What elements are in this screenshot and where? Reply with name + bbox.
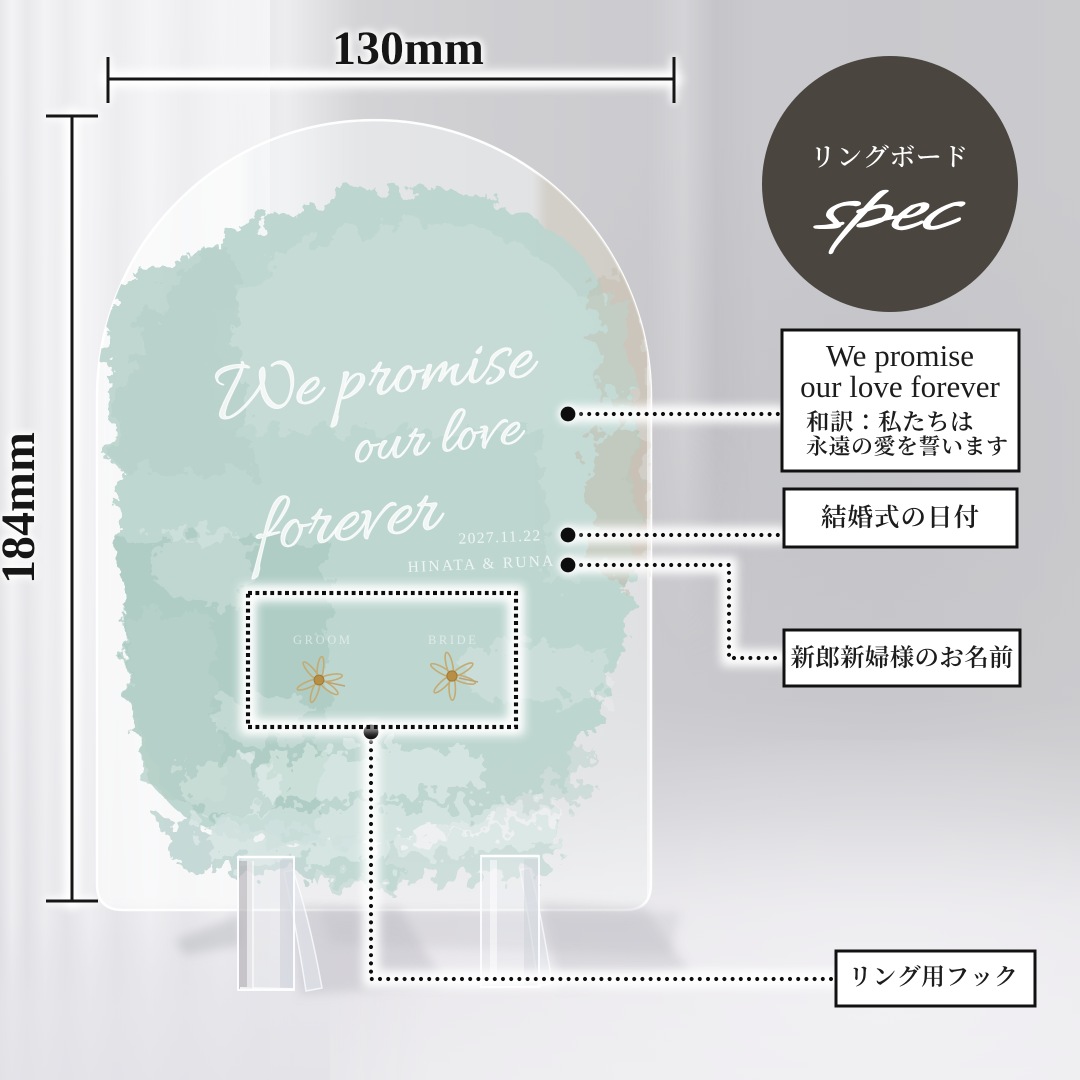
- svg-text:130mm: 130mm: [332, 22, 484, 75]
- svg-text:184mm: 184mm: [0, 432, 45, 584]
- svg-text:We promise: We promise: [826, 338, 974, 373]
- svg-text:BRIDE: BRIDE: [428, 633, 479, 647]
- svg-text:our love forever: our love forever: [800, 369, 1000, 404]
- svg-text:GROOM: GROOM: [293, 633, 353, 647]
- svg-text:2027.11.22: 2027.11.22: [458, 527, 542, 548]
